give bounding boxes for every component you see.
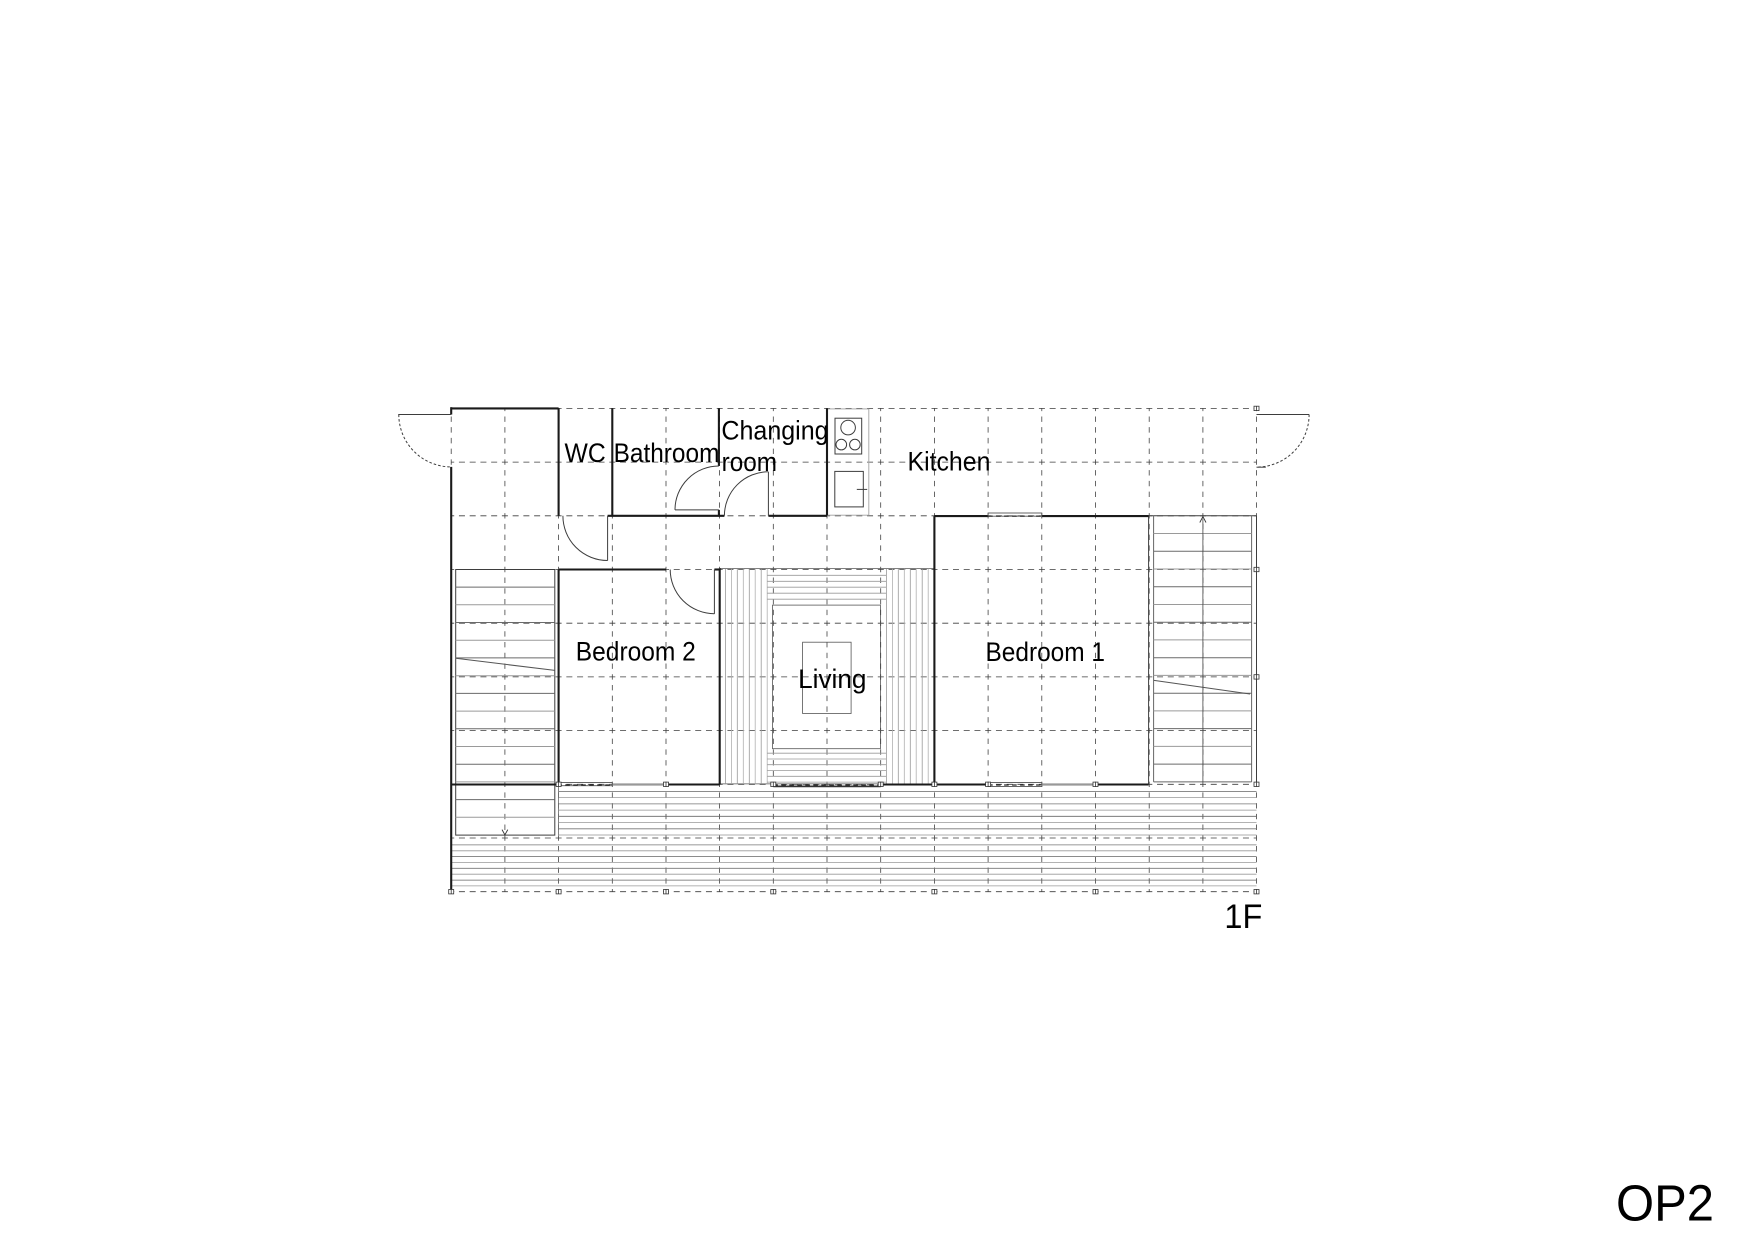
- svg-text:room: room: [722, 447, 777, 477]
- svg-text:Changing: Changing: [721, 415, 828, 445]
- svg-text:Bathroom: Bathroom: [614, 438, 720, 468]
- svg-text:Living: Living: [798, 664, 866, 694]
- svg-text:Bedroom 2: Bedroom 2: [576, 636, 696, 666]
- svg-text:OP2: OP2: [1616, 1174, 1714, 1231]
- svg-text:Kitchen: Kitchen: [908, 447, 991, 477]
- svg-text:1F: 1F: [1224, 898, 1262, 936]
- svg-text:Bedroom 1: Bedroom 1: [986, 637, 1106, 667]
- svg-text:WC: WC: [565, 438, 606, 468]
